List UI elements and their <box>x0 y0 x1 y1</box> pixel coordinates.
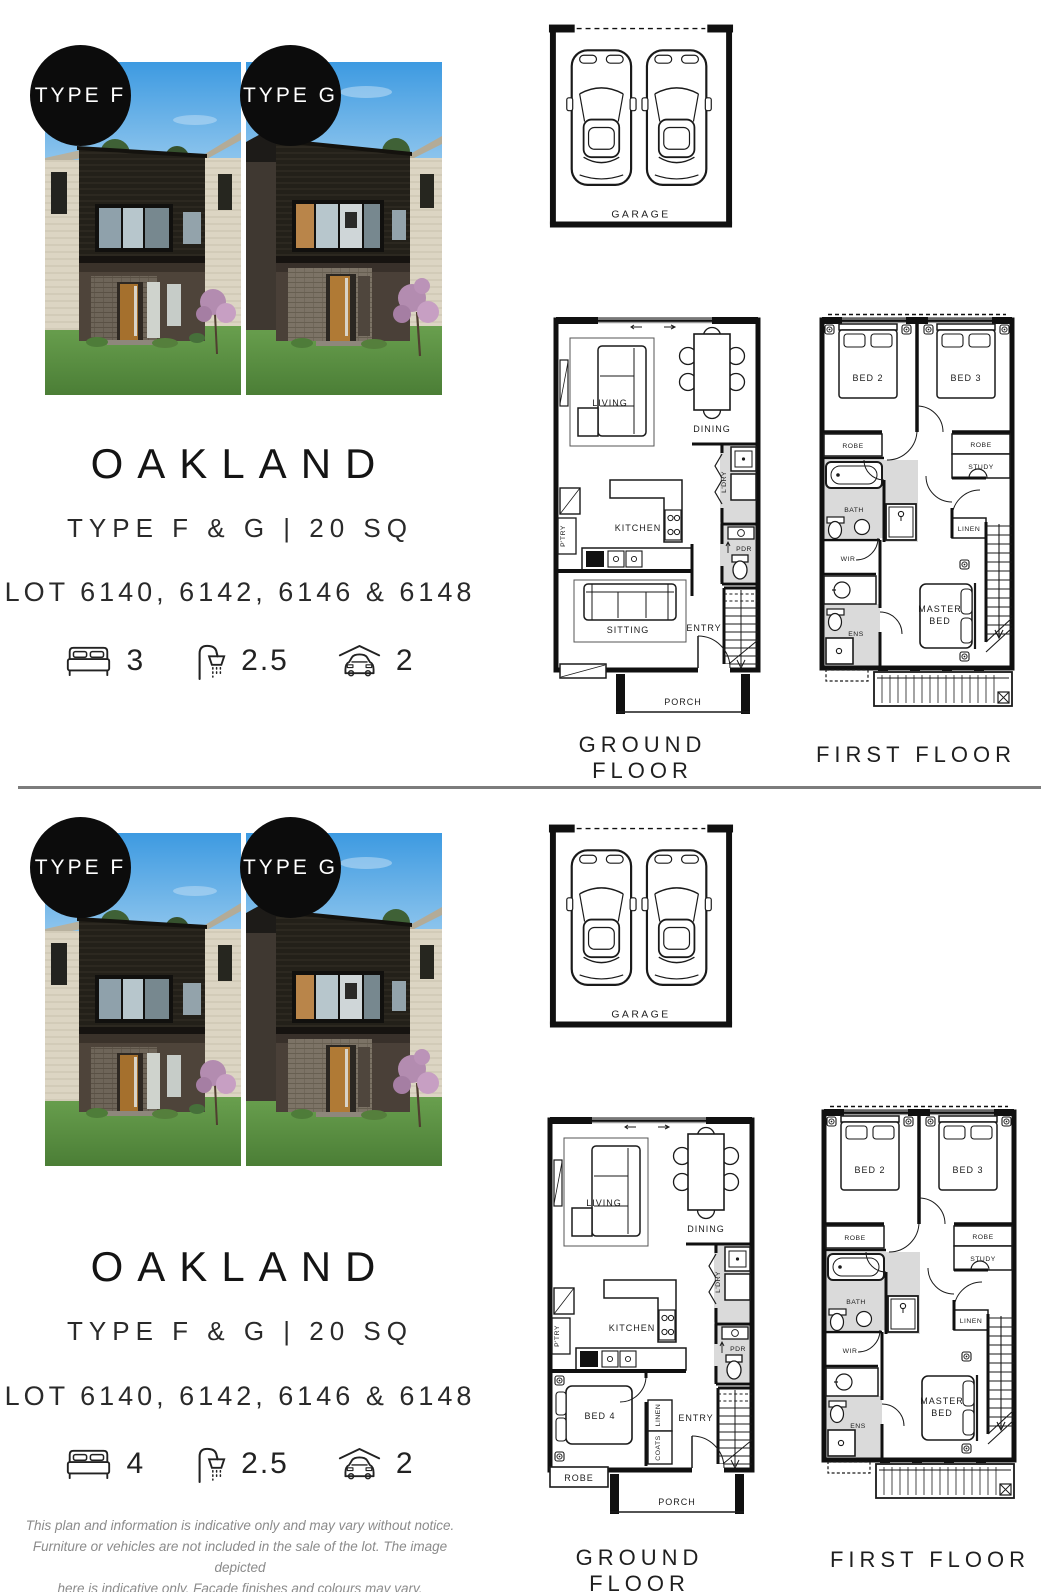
brochure-page: TYPE F TYPE G OAKLAND TYPE F & G | 20 SQ… <box>0 0 1058 1592</box>
cars-count: 2 <box>396 644 415 678</box>
beds-stat-2: 4 <box>65 1447 145 1481</box>
beds-count-2: 4 <box>126 1447 145 1481</box>
ground-floor-plan-top <box>552 312 762 717</box>
disclaimer: This plan and information is indicative … <box>18 1516 462 1592</box>
ground-floor-plan-bottom <box>546 1112 756 1517</box>
garage-plan-top <box>545 18 737 235</box>
plan-title-2: OAKLAND <box>2 1243 478 1291</box>
first-floor-plan-top <box>818 312 1016 712</box>
ground-floor-caption-top: GROUND FLOOR <box>525 732 760 784</box>
lot-numbers-2: LOT 6140, 6142, 6146 & 6148 <box>2 1381 478 1412</box>
disclaimer-line-2: Furniture or vehicles are not included i… <box>18 1537 462 1579</box>
first-floor-caption-top: FIRST FLOOR <box>812 742 1020 768</box>
garage-plan-bottom <box>545 818 737 1035</box>
cars-count-2: 2 <box>396 1447 415 1481</box>
plan-title: OAKLAND <box>2 440 478 488</box>
plan-subtitle-2: TYPE F & G | 20 SQ <box>2 1316 478 1347</box>
plan-subtitle: TYPE F & G | 20 SQ <box>2 513 478 544</box>
lot-numbers: LOT 6140, 6142, 6146 & 6148 <box>2 577 478 608</box>
stats-row-bottom: 4 2.5 2 <box>2 1444 478 1484</box>
type-g-badge-label: TYPE G <box>243 84 338 108</box>
type-f-badge-2: TYPE F <box>30 817 131 918</box>
car-garage-icon-2 <box>337 1446 382 1482</box>
type-g-badge-2: TYPE G <box>240 817 341 918</box>
beds-count: 3 <box>126 644 145 678</box>
stats-row-top: 3 2.5 2 <box>2 641 478 681</box>
baths-count-2: 2.5 <box>241 1447 289 1481</box>
section-divider <box>18 786 1041 789</box>
disclaimer-line-1: This plan and information is indicative … <box>18 1516 462 1537</box>
disclaimer-line-3: here is indicative only. Facade finishes… <box>18 1579 462 1592</box>
bed-icon <box>65 644 112 678</box>
beds-stat: 3 <box>65 644 145 678</box>
type-g-badge-label-2: TYPE G <box>243 856 338 880</box>
baths-stat-2: 2.5 <box>193 1444 289 1484</box>
shower-icon <box>193 641 227 681</box>
cars-stat: 2 <box>337 643 415 679</box>
bed-icon-2 <box>65 1447 112 1481</box>
first-floor-caption-bottom: FIRST FLOOR <box>826 1547 1034 1573</box>
type-f-badge: TYPE F <box>30 45 131 146</box>
type-f-badge-label: TYPE F <box>35 84 127 108</box>
first-floor-plan-bottom <box>820 1104 1018 1504</box>
baths-stat: 2.5 <box>193 641 289 681</box>
baths-count: 2.5 <box>241 644 289 678</box>
type-f-badge-label-2: TYPE F <box>35 856 127 880</box>
ground-floor-caption-bottom: GROUND FLOOR <box>522 1545 757 1592</box>
type-g-badge: TYPE G <box>240 45 341 146</box>
cars-stat-2: 2 <box>337 1446 415 1482</box>
shower-icon-2 <box>193 1444 227 1484</box>
car-garage-icon <box>337 643 382 679</box>
